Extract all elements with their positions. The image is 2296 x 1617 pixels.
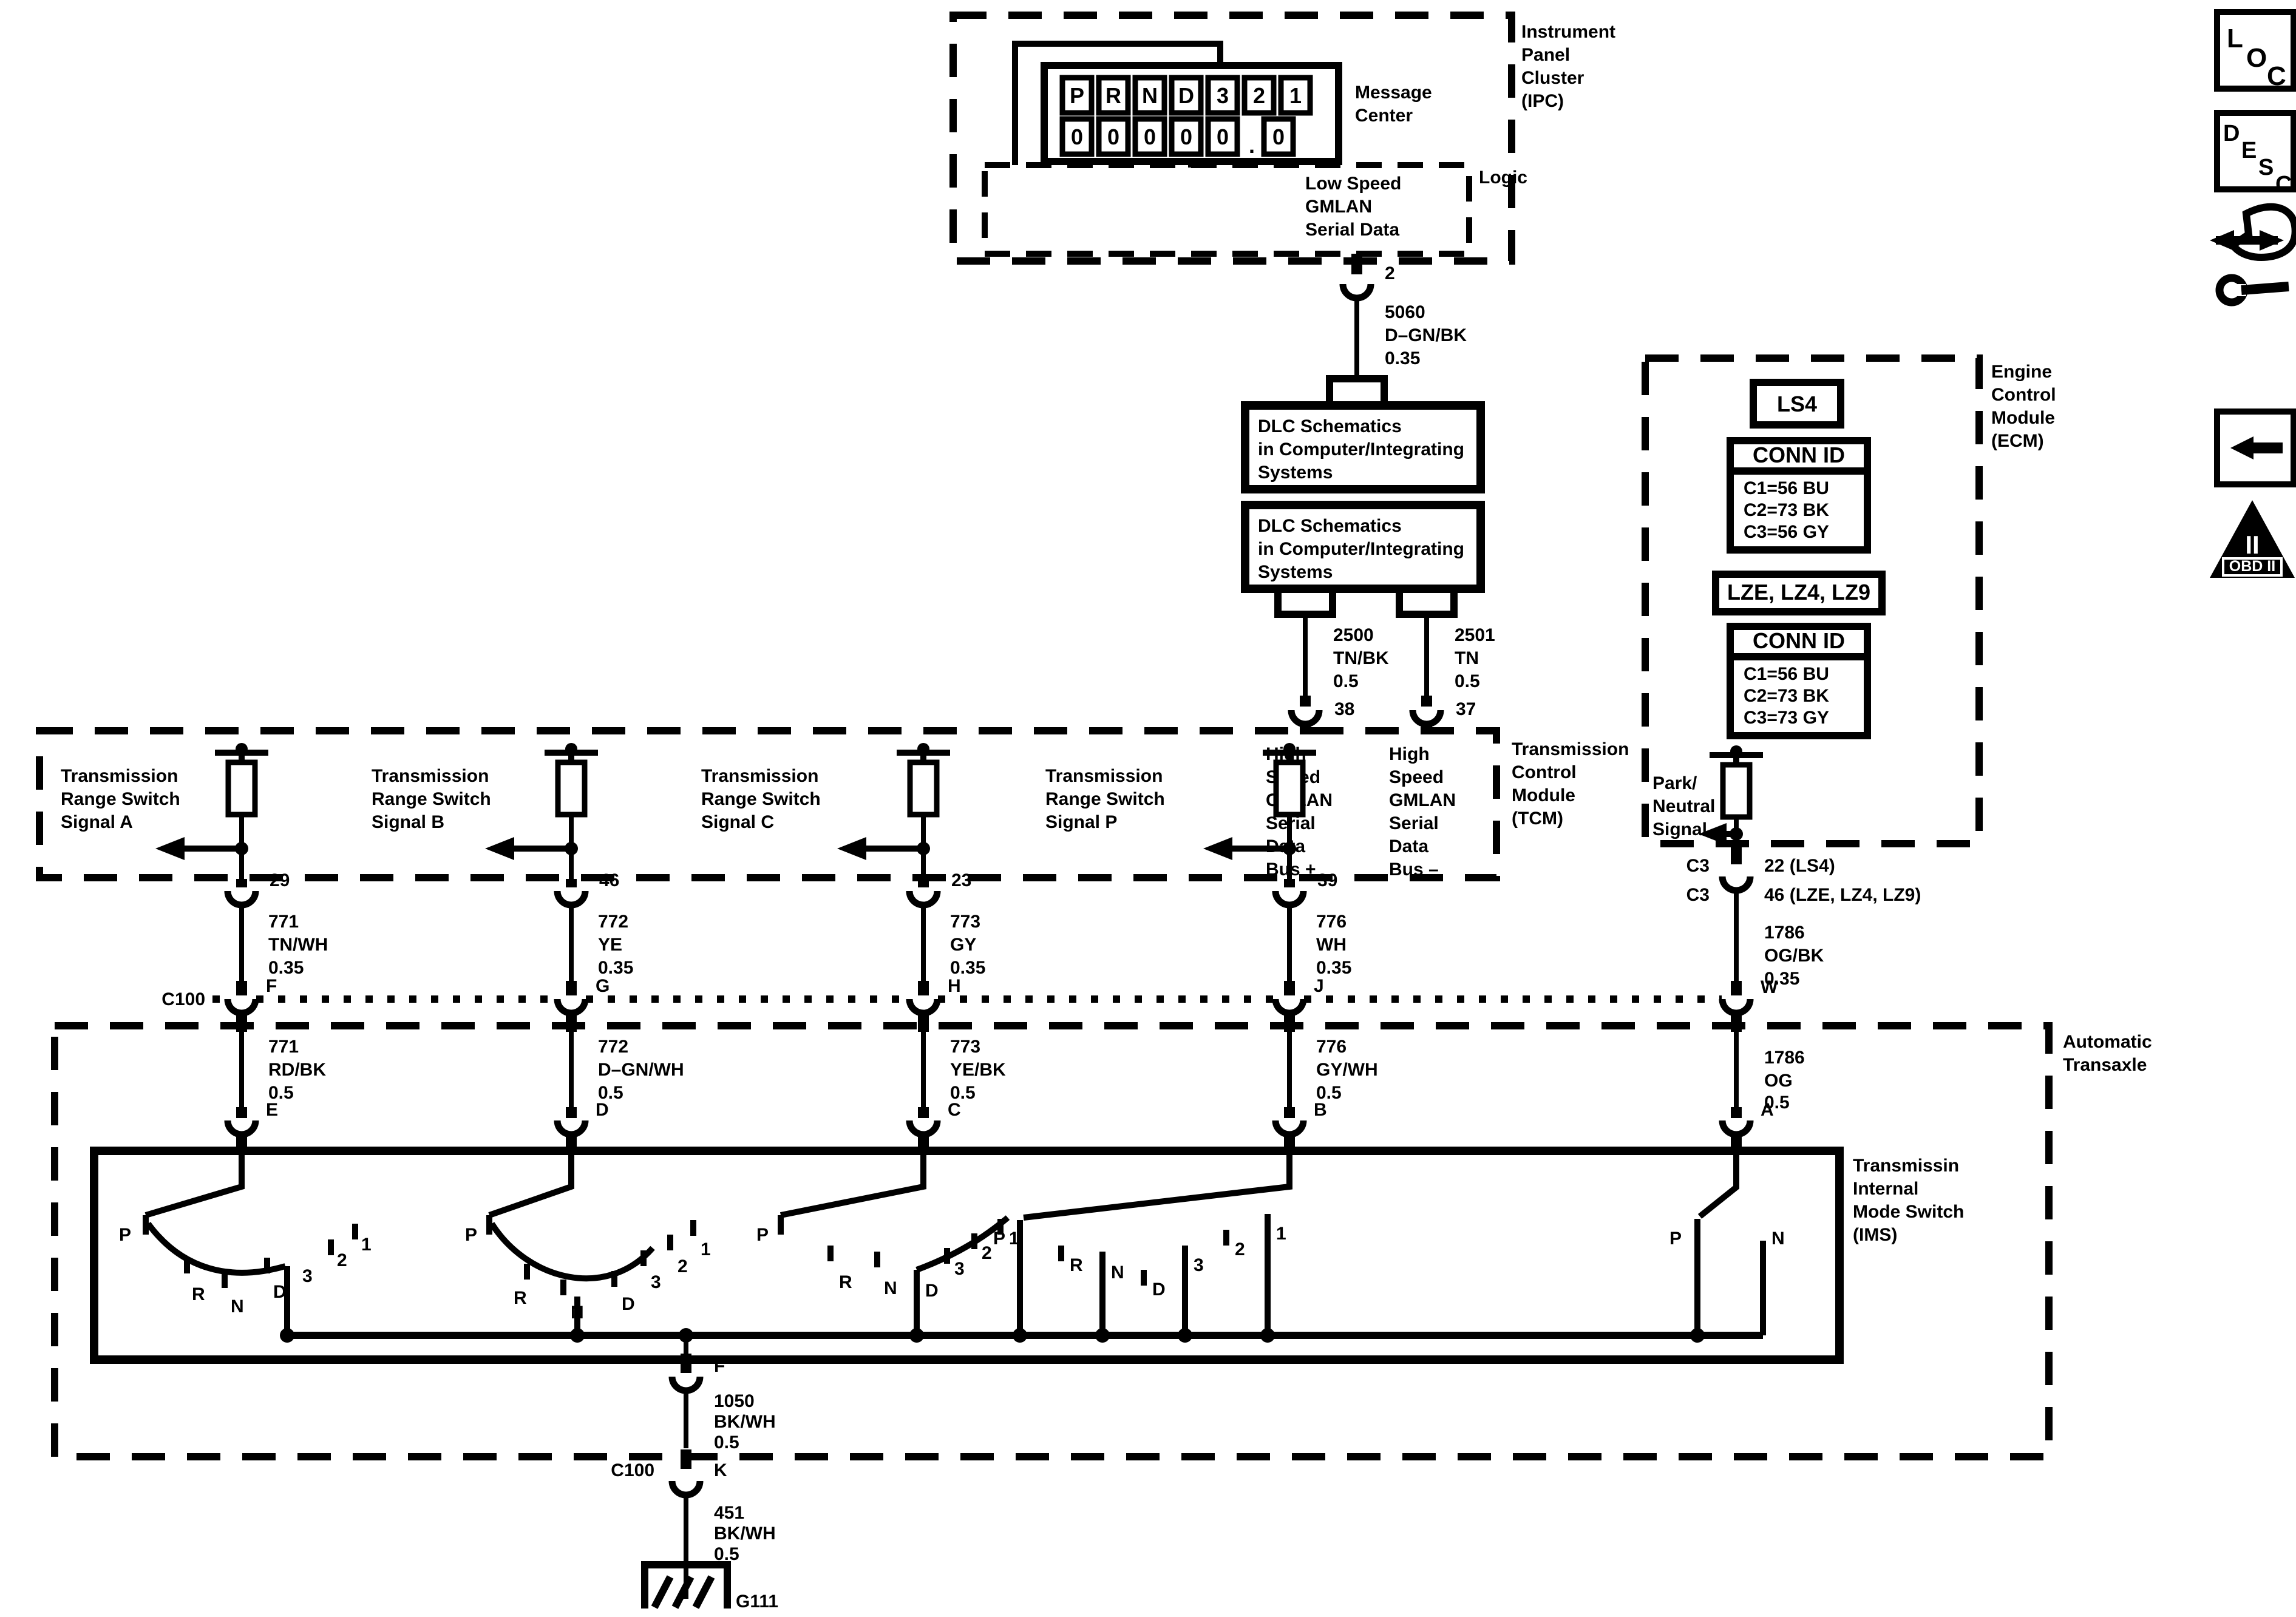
position-label: 3 <box>302 1266 313 1286</box>
ims-label: Transmissin <box>1853 1156 1959 1176</box>
back-arrow-button[interactable] <box>2217 412 2294 484</box>
ims-pin-label: D <box>596 1100 609 1120</box>
signal-label: Range Switch <box>372 789 491 809</box>
gear-cell: R <box>1106 83 1121 108</box>
wire-color: YE <box>598 935 622 955</box>
logic-bus-label: GMLAN <box>1305 197 1372 217</box>
circuit-number: 776 <box>1316 1037 1347 1057</box>
signal-c-wire-run: 23 773 GY 0.35 H 773 YE/BK 0.5 C <box>909 870 1006 1152</box>
ipc-block: Instrument Panel Cluster (IPC) P R N D 3… <box>953 15 1615 261</box>
resistor-icon <box>1723 765 1750 817</box>
pn-signal-label: Signal <box>1652 819 1707 839</box>
signal-arrow-icon <box>837 837 866 860</box>
signal-label: Transmission <box>1045 766 1163 786</box>
desc-letter: C <box>2275 172 2292 197</box>
wire-gauge: 0.5 <box>1455 671 1480 691</box>
ecm-conn-label: C3 <box>1686 885 1710 905</box>
wire-gauge: 0.5 <box>714 1432 739 1453</box>
circuit-number: 1786 <box>1764 923 1805 943</box>
wire-gauge: 0.35 <box>950 958 985 978</box>
dlc-note: in Computer/Integrating <box>1258 539 1464 559</box>
tcm-label: Transmission <box>1512 739 1629 759</box>
position-label: D <box>1152 1280 1166 1300</box>
ims-switch-p: P R N D 3 2 1 <box>993 1152 1289 1335</box>
digit-cell: 0 <box>1180 124 1192 149</box>
ims-label: Internal <box>1853 1179 1918 1199</box>
circuit-number: 1050 <box>714 1391 755 1411</box>
resistor-icon <box>1276 762 1303 815</box>
position-label: R <box>1070 1255 1083 1275</box>
gear-cell: 1 <box>1289 83 1302 108</box>
wire-color: OG <box>1764 1071 1793 1091</box>
conn-id-row: C3=73 GY <box>1744 708 1829 728</box>
ipc-label: Instrument <box>1521 22 1615 42</box>
dlc-note: Systems <box>1258 463 1333 483</box>
gear-indicator-row: P R N D 3 2 1 <box>1062 78 1310 113</box>
gear-cell: N <box>1142 83 1158 108</box>
signal-label: Range Switch <box>61 789 180 809</box>
wire-5060: 2 5060 D–GN/BK 0.35 <box>1330 254 1467 405</box>
tcm-branch-signal-b: Transmission Range Switch Signal B <box>372 743 598 879</box>
logic-bus-label: Low Speed <box>1305 174 1401 194</box>
circuit-number: 451 <box>714 1503 744 1523</box>
engine-code: LZE, LZ4, LZ9 <box>1727 580 1870 605</box>
position-label: N <box>571 1303 584 1323</box>
wire-color: TN/BK <box>1333 648 1389 668</box>
resistor-icon <box>228 762 255 815</box>
tcm-pin-label: 46 <box>599 870 619 890</box>
position-label: D <box>273 1282 287 1302</box>
ims-label: (IMS) <box>1853 1225 1897 1245</box>
wire-color: TN <box>1455 648 1479 668</box>
transaxle-dashed-box <box>55 1026 2049 1457</box>
transaxle-label: Automatic <box>2063 1032 2152 1052</box>
c100-pin-label: H <box>948 976 961 996</box>
position-label: 3 <box>651 1272 661 1292</box>
tcm-pin-label: 39 <box>1317 870 1337 890</box>
c100-pin-label: F <box>266 976 277 996</box>
ims-box <box>94 1151 1839 1360</box>
ecm-label: Module <box>1991 408 2055 428</box>
ims-switch-a: P R N D 3 2 1 <box>119 1152 372 1335</box>
position-label: R <box>514 1288 527 1308</box>
conn-id-row: C2=73 BK <box>1744 686 1829 706</box>
ipc-label: Cluster <box>1521 68 1584 88</box>
obd-numeral: II <box>2245 531 2259 559</box>
gear-cell: 2 <box>1253 83 1265 108</box>
signal-label: Signal P <box>1045 812 1117 832</box>
ims-pin-label: E <box>266 1100 278 1120</box>
position-label: 1 <box>361 1235 372 1255</box>
ims-block: Transmissin Internal Mode Switch (IMS) P… <box>94 1151 1964 1360</box>
wire-gauge: 0.35 <box>1385 348 1420 368</box>
c100-connector-line: C100 <box>161 989 1722 1009</box>
circuit-number: 773 <box>950 1037 980 1057</box>
position-label: 3 <box>954 1259 965 1279</box>
connector-cup <box>1413 710 1441 724</box>
engine-code: LS4 <box>1777 392 1817 416</box>
tcm-label: Control <box>1512 762 1577 782</box>
wire-2500: 2500 TN/BK 0.5 38 <box>1291 614 1389 734</box>
tcm-pin-label: 38 <box>1334 699 1354 719</box>
conn-id-title: CONN ID <box>1753 442 1845 467</box>
digit-cell: 0 <box>1272 124 1285 149</box>
ims-switch-b: P R N D 3 2 1 <box>465 1152 711 1335</box>
signal-arrow-icon <box>155 837 185 860</box>
position-label: P <box>993 1229 1005 1249</box>
signal-arrow-icon <box>485 837 514 860</box>
tcm-pin-label: 37 <box>1456 699 1476 719</box>
digit-cell: 0 <box>1107 124 1119 149</box>
wire-2501: 2501 TN 0.5 37 <box>1413 614 1495 734</box>
c100-label: C100 <box>611 1460 654 1480</box>
position-label: P <box>1669 1229 1682 1249</box>
circuit-number: 772 <box>598 912 628 932</box>
dlc-note: DLC Schematics <box>1258 416 1402 436</box>
position-label: P <box>119 1225 131 1245</box>
ims-out-pin-label: F <box>714 1356 725 1376</box>
ecm-block: Engine Control Module (ECM) LS4 CONN ID … <box>1645 358 2056 845</box>
dlc-note: DLC Schematics <box>1258 516 1402 536</box>
circuit-number: 2501 <box>1455 625 1495 645</box>
position-label: N <box>1771 1229 1785 1249</box>
signal-label: Transmission <box>61 766 178 786</box>
c100-pin-label: G <box>596 976 610 996</box>
ims-switch-park-neutral: P N <box>1669 1152 1785 1335</box>
bus-line: GMLAN <box>1389 790 1456 810</box>
circuit-number: 5060 <box>1385 302 1425 322</box>
position-label: N <box>884 1278 897 1298</box>
signal-label: Signal B <box>372 812 444 832</box>
tcm-branch-signal-p: Transmission Range Switch Signal P <box>1045 743 1316 879</box>
wire-color: GY/WH <box>1316 1060 1378 1080</box>
message-center-label: Message <box>1355 83 1432 103</box>
position-label: 2 <box>982 1243 992 1263</box>
tcm-branch-signal-c: Transmission Range Switch Signal C <box>701 743 950 879</box>
pn-signal-label: Park/ <box>1652 773 1697 793</box>
connector-cup <box>1343 284 1371 298</box>
decimal-point: . <box>1249 133 1255 158</box>
position-label: D <box>925 1281 939 1301</box>
position-label: P <box>465 1225 477 1245</box>
transaxle-label: Transaxle <box>2063 1055 2147 1075</box>
ipc-label: Panel <box>1521 45 1570 65</box>
signal-p-wire-run: 39 776 WH 0.35 J 776 GY/WH 0.5 B <box>1275 870 1378 1152</box>
signal-label: Signal A <box>61 812 133 832</box>
dlc-note-boxes: DLC Schematics in Computer/Integrating S… <box>1245 405 1481 614</box>
ims-switch-c: P R N D 3 2 1 <box>756 1152 1019 1335</box>
conn-id-row: C3=56 GY <box>1744 522 1829 542</box>
conn-id-title: CONN ID <box>1753 628 1845 653</box>
ecm-conn-label: C3 <box>1686 856 1710 876</box>
position-label: N <box>1111 1263 1124 1283</box>
logic-label: Logic <box>1479 168 1527 188</box>
sidebar-icons: L O C D E S C II OBD <box>2210 12 2295 578</box>
dlc-note: in Computer/Integrating <box>1258 439 1464 459</box>
wire-gauge: 0.35 <box>1316 958 1351 978</box>
ipc-pin-label: 2 <box>1385 263 1395 283</box>
conn-id-row: C1=56 BU <box>1744 664 1829 684</box>
wire-color: YE/BK <box>950 1060 1006 1080</box>
ground-id-label: G111 <box>736 1592 778 1612</box>
odometer-row: 0 0 0 0 0 . 0 <box>1062 119 1293 158</box>
signal-a-wire-run: 29 771 TN/WH 0.35 F 771 RD/BK 0.5 E <box>228 870 328 1152</box>
ecm-pin-label: 46 (LZE, LZ4, LZ9) <box>1764 885 1921 905</box>
bus-line: Bus – <box>1389 859 1439 880</box>
gear-cell: P <box>1070 83 1084 108</box>
c100-pin-label: J <box>1314 976 1324 996</box>
position-label: P <box>756 1225 769 1245</box>
wire-color: BK/WH <box>714 1412 776 1432</box>
conn-id-row: C1=56 BU <box>1744 478 1829 498</box>
ims-pin-label: C <box>948 1100 961 1120</box>
desc-letter: S <box>2258 155 2274 180</box>
circuit-number: 772 <box>598 1037 628 1057</box>
circuit-number: 2500 <box>1333 625 1374 645</box>
hs-gmlan-bus-minus-label: High Speed GMLAN Serial Data Bus – <box>1389 744 1456 880</box>
pn-signal-label: Neutral <box>1652 796 1715 816</box>
position-label: R <box>839 1272 852 1292</box>
wire-color: BK/WH <box>714 1524 776 1544</box>
digit-cell: 0 <box>1217 124 1229 149</box>
wire-color: OG/BK <box>1764 946 1824 966</box>
position-label: 1 <box>701 1239 711 1259</box>
ipc-label: (IPC) <box>1521 91 1564 111</box>
signal-label: Range Switch <box>1045 789 1165 809</box>
dlc-note: Systems <box>1258 562 1333 582</box>
position-label: 2 <box>337 1250 347 1270</box>
position-label: 2 <box>678 1256 688 1276</box>
wire-color: TN/WH <box>268 935 328 955</box>
circuit-number: 1786 <box>1764 1048 1805 1068</box>
ecm-pin-label: 22 (LS4) <box>1764 856 1835 876</box>
bus-line: Data <box>1389 836 1428 856</box>
connector-cup <box>1291 710 1319 724</box>
c100-label: C100 <box>161 989 205 1009</box>
loc-letter: L <box>2227 24 2243 53</box>
wiring-diagram-page: Instrument Panel Cluster (IPC) P R N D 3… <box>0 0 2296 1617</box>
signal-label: Range Switch <box>701 789 821 809</box>
transmission-range-switch-schematic: Instrument Panel Cluster (IPC) P R N D 3… <box>0 0 2296 1617</box>
c100-pin-label: W <box>1761 977 1778 997</box>
conn-id-row: C2=73 BK <box>1744 500 1829 520</box>
wire-gauge: 0.5 <box>1333 671 1359 691</box>
wire-color: RD/BK <box>268 1060 326 1080</box>
desc-button[interactable]: D E S C <box>2217 113 2294 197</box>
signal-arrow-icon <box>1203 837 1232 860</box>
circuit-number: 771 <box>268 912 299 932</box>
resistor-icon <box>910 762 937 815</box>
loc-button[interactable]: L O C <box>2217 12 2294 91</box>
wrench-arrow-icon[interactable] <box>2210 207 2295 302</box>
obd-label: OBD II <box>2229 558 2275 575</box>
gear-cell: D <box>1178 83 1194 108</box>
obd-ii-icon[interactable]: II OBD II <box>2210 500 2295 578</box>
bus-line: High <box>1389 744 1430 764</box>
position-label: 1 <box>1276 1224 1286 1244</box>
wire-color: D–GN/WH <box>598 1060 684 1080</box>
wire-color: GY <box>950 935 976 955</box>
signal-label: Transmission <box>701 766 818 786</box>
ground-run: F 1050 BK/WH 0.5 C100 K 451 BK/WH 0.5 G1… <box>611 1335 778 1612</box>
digit-cell: 0 <box>1144 124 1156 149</box>
bus-line: Speed <box>1389 767 1444 787</box>
position-label: R <box>192 1284 205 1304</box>
wire-gauge: 0.35 <box>598 958 633 978</box>
wire-color: D–GN/BK <box>1385 325 1467 345</box>
resistor-icon <box>558 762 585 815</box>
tcm-label: (TCM) <box>1512 808 1563 829</box>
wire-gauge: 0.35 <box>268 958 304 978</box>
desc-letter: D <box>2223 121 2240 146</box>
signal-label: Signal C <box>701 812 774 832</box>
gear-cell: 3 <box>1217 83 1229 108</box>
position-label: 3 <box>1194 1255 1204 1275</box>
circuit-number: 771 <box>268 1037 299 1057</box>
signal-b-wire-run: 46 772 YE 0.35 G 772 D–GN/WH 0.5 D <box>557 870 684 1152</box>
ims-pin-label: B <box>1314 1100 1327 1120</box>
digit-cell: 0 <box>1071 124 1083 149</box>
message-center-label: Center <box>1355 106 1413 126</box>
loc-letter: O <box>2246 43 2267 73</box>
signal-label: Transmission <box>372 766 489 786</box>
circuit-number: 773 <box>950 912 980 932</box>
desc-letter: E <box>2241 138 2257 163</box>
tcm-pin-label: 23 <box>951 870 971 890</box>
bus-line: Serial <box>1389 813 1439 833</box>
ecm-label: (ECM) <box>1991 431 2044 451</box>
logic-bus-label: Serial Data <box>1305 220 1399 240</box>
position-label: N <box>231 1297 244 1317</box>
position-label: 2 <box>1235 1239 1245 1259</box>
wire-color: WH <box>1316 935 1347 955</box>
ecm-label: Engine <box>1991 362 2052 382</box>
c100-pin-label: K <box>714 1460 727 1480</box>
tcm-label: Module <box>1512 785 1575 805</box>
position-label: D <box>622 1294 635 1314</box>
ims-label: Mode Switch <box>1853 1202 1964 1222</box>
ims-pin-label: A <box>1761 1100 1774 1120</box>
tcm-block: Transmission Control Module (TCM) High S… <box>39 731 1629 880</box>
circuit-number: 776 <box>1316 912 1347 932</box>
tcm-pin-label: 29 <box>270 870 290 890</box>
ecm-label: Control <box>1991 385 2056 405</box>
loc-letter: C <box>2267 61 2286 91</box>
tcm-branch-signal-a: Transmission Range Switch Signal A <box>61 743 268 879</box>
